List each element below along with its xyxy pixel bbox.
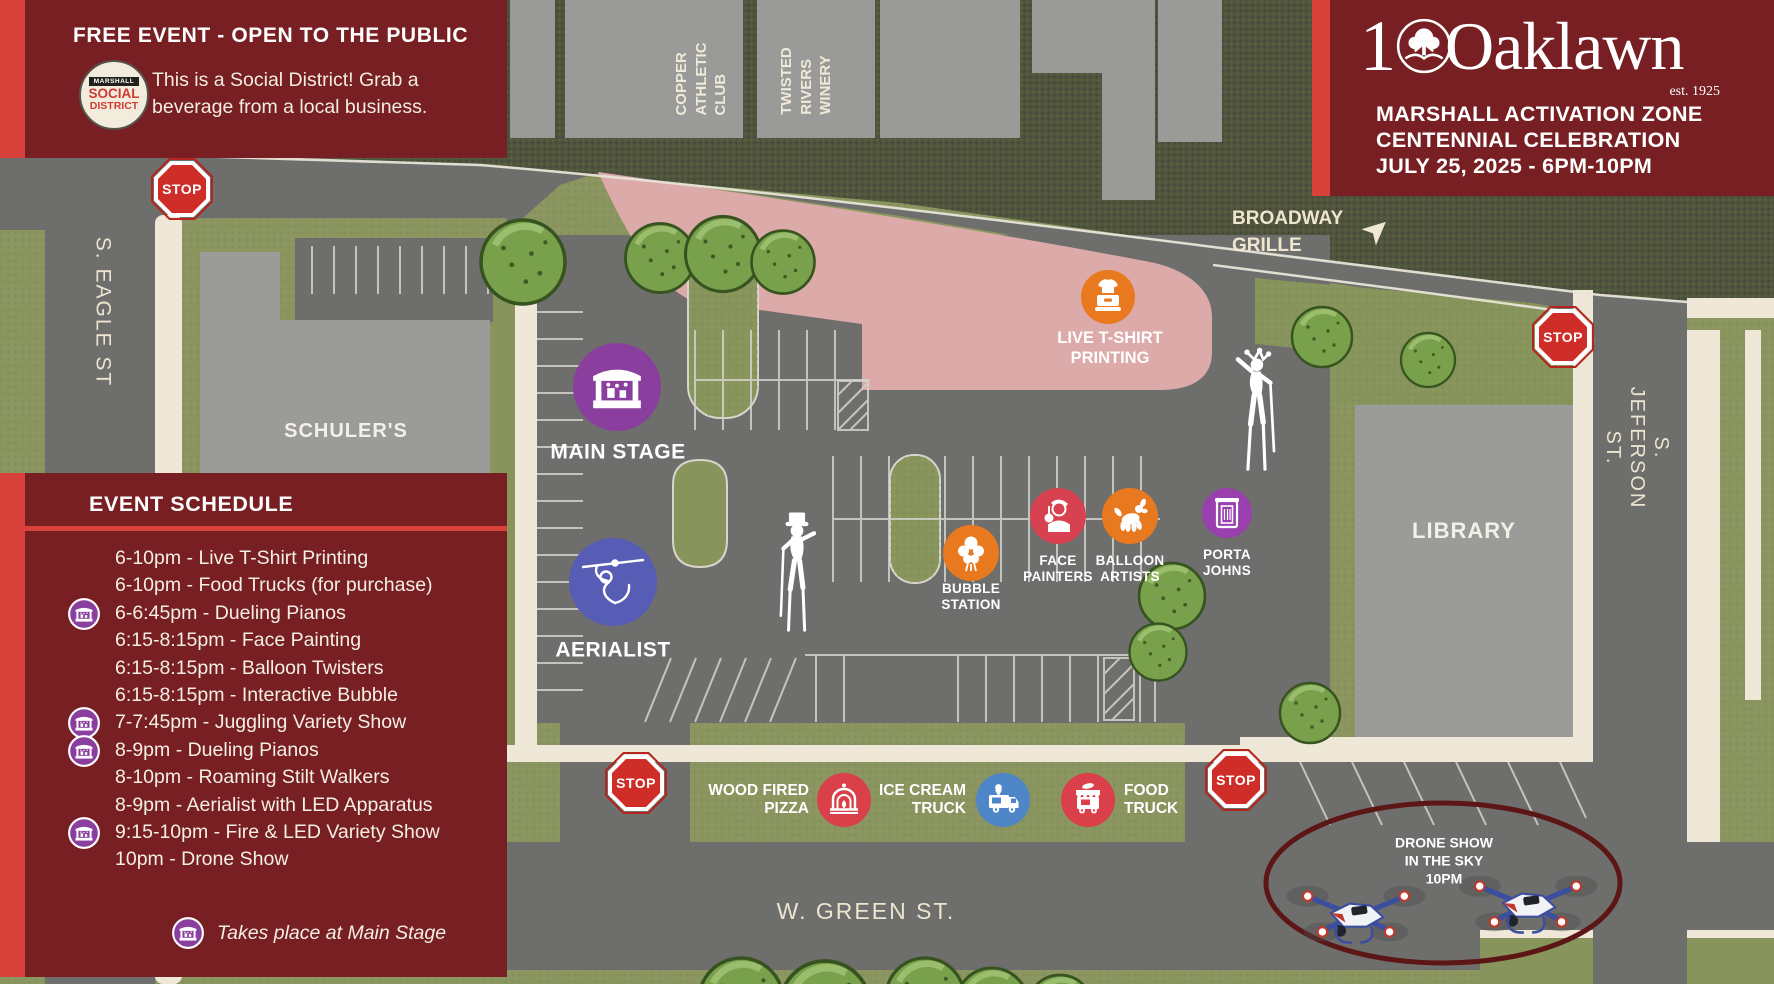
ice-cream-truck-label: ICE CREAM TRUCK [816,782,966,819]
badge-marshall: MARSHALL [89,77,139,86]
schedule-title: EVENT SCHEDULE [89,492,293,517]
schedule-item: 6:15-8:15pm - Balloon Twisters [53,655,503,682]
main-stage-icon [67,734,101,768]
bubble-station-icon [942,524,1000,582]
schedule-list: 6-10pm - Live T-Shirt Printing 6-10pm - … [53,545,503,874]
free-event-banner: FREE EVENT - OPEN TO THE PUBLIC MARSHALL… [25,0,507,158]
main-stage-icon [572,342,662,432]
schedule-item: 6-6:45pm - Dueling Pianos [53,600,503,627]
wood-fired-pizza-label: WOOD FIRED PIZZA [659,782,809,819]
schedule-item: 8-10pm - Roaming Stilt Walkers [53,764,503,791]
schedule-item: 6-10pm - Live T-Shirt Printing [53,545,503,572]
stop-sign-label: STOP [1216,772,1256,788]
face-painters-icon [1029,487,1087,545]
stop-sign-label: STOP [616,775,656,791]
schedule-item: 6-10pm - Food Trucks (for purchase) [53,572,503,599]
header-panel: 1 Oaklawn est. 1925 MARSHALL ACTIVATION … [1330,0,1774,196]
library-building [1355,405,1573,737]
schedule-item: 10pm - Drone Show [53,846,503,873]
event-map-poster: S. EAGLE ST S. JEFERSON ST. W. GREEN ST.… [0,0,1774,984]
logo-wordmark: Oaklawn [1445,12,1683,80]
social-district-badge-icon: MARSHALL SOCIAL DISTRICT [79,60,149,130]
drone-show-label: DRONE SHOW IN THE SKY 10PM [1395,834,1493,889]
header-line1: MARSHALL ACTIVATION ZONE [1376,102,1703,127]
tshirt-printing-label: LIVE T-SHIRT PRINTING [1057,329,1162,369]
stop-sign-label: STOP [162,181,202,197]
event-schedule-panel: EVENT SCHEDULE 6-10pm - Live T-Shirt Pri… [25,473,507,977]
tshirt-printing-icon [1080,269,1136,325]
logo-numeral: 1 [1360,10,1396,82]
schedule-divider [25,526,507,531]
copper-athletic-club-label: COPPER ATHLETIC CLUB [672,42,731,115]
schedule-item: 6:15-8:15pm - Interactive Bubble [53,682,503,709]
badge-district: DISTRICT [90,100,138,113]
face-painters-label: FACE PAINTERS [1023,553,1093,585]
header-line3: JULY 25, 2025 - 6PM-10PM [1376,154,1652,179]
banner-title: FREE EVENT - OPEN TO THE PUBLIC [73,24,468,48]
oaklawn-logo: 1 Oaklawn [1360,10,1683,82]
schulers-label: SCHULER'S [284,419,408,443]
schedule-item: 9:15-10pm - Fire & LED Variety Show [53,819,503,846]
porta-johns-icon [1201,487,1253,539]
eagle-street-label: S. EAGLE ST [90,237,115,387]
logo-est: est. 1925 [1360,84,1720,100]
balloon-artists-label: BALLOON ARTISTS [1096,553,1165,585]
banner-text: This is a Social District! Grab a bevera… [152,67,427,122]
aerialist-icon [568,537,658,627]
main-stage-icon [67,816,101,850]
twisted-rivers-winery-label: TWISTED RIVERS WINERY [777,47,836,115]
schedule-item: 8-9pm - Aerialist with LED Apparatus [53,792,503,819]
green-street-label: W. GREEN ST. [777,898,956,926]
main-stage-label: MAIN STAGE [550,439,685,464]
stop-sign-label: STOP [1543,329,1583,345]
schedule-footnote: Takes place at Main Stage [171,916,446,950]
schedule-item: 8-9pm - Dueling Pianos [53,737,503,764]
food-truck-icon [1060,772,1116,828]
broadway-grille-label: BROADWAY GRILLE [1232,206,1343,259]
schedule-item: 6:15-8:15pm - Face Painting [53,627,503,654]
header-line2: CENTENNIAL CELEBRATION [1376,128,1680,153]
banner-accent-stripe [0,0,25,158]
jeferson-street-label: S. JEFERSON ST. [1601,380,1673,517]
header-accent-stripe [1312,0,1330,196]
porta-johns-label: PORTA JOHNS [1203,547,1251,579]
badge-social: SOCIAL [88,87,139,101]
schedule-item: 7-7:45pm - Juggling Variety Show [53,709,503,736]
ice-cream-truck-icon [975,772,1031,828]
main-stage-icon [67,597,101,631]
schedule-accent-stripe [0,473,25,977]
library-label: LIBRARY [1412,518,1516,544]
main-stage-icon [171,916,205,950]
balloon-artists-icon [1101,487,1159,545]
aerialist-label: AERIALIST [555,637,670,662]
bubble-station-label: BUBBLE STATION [941,581,1000,613]
